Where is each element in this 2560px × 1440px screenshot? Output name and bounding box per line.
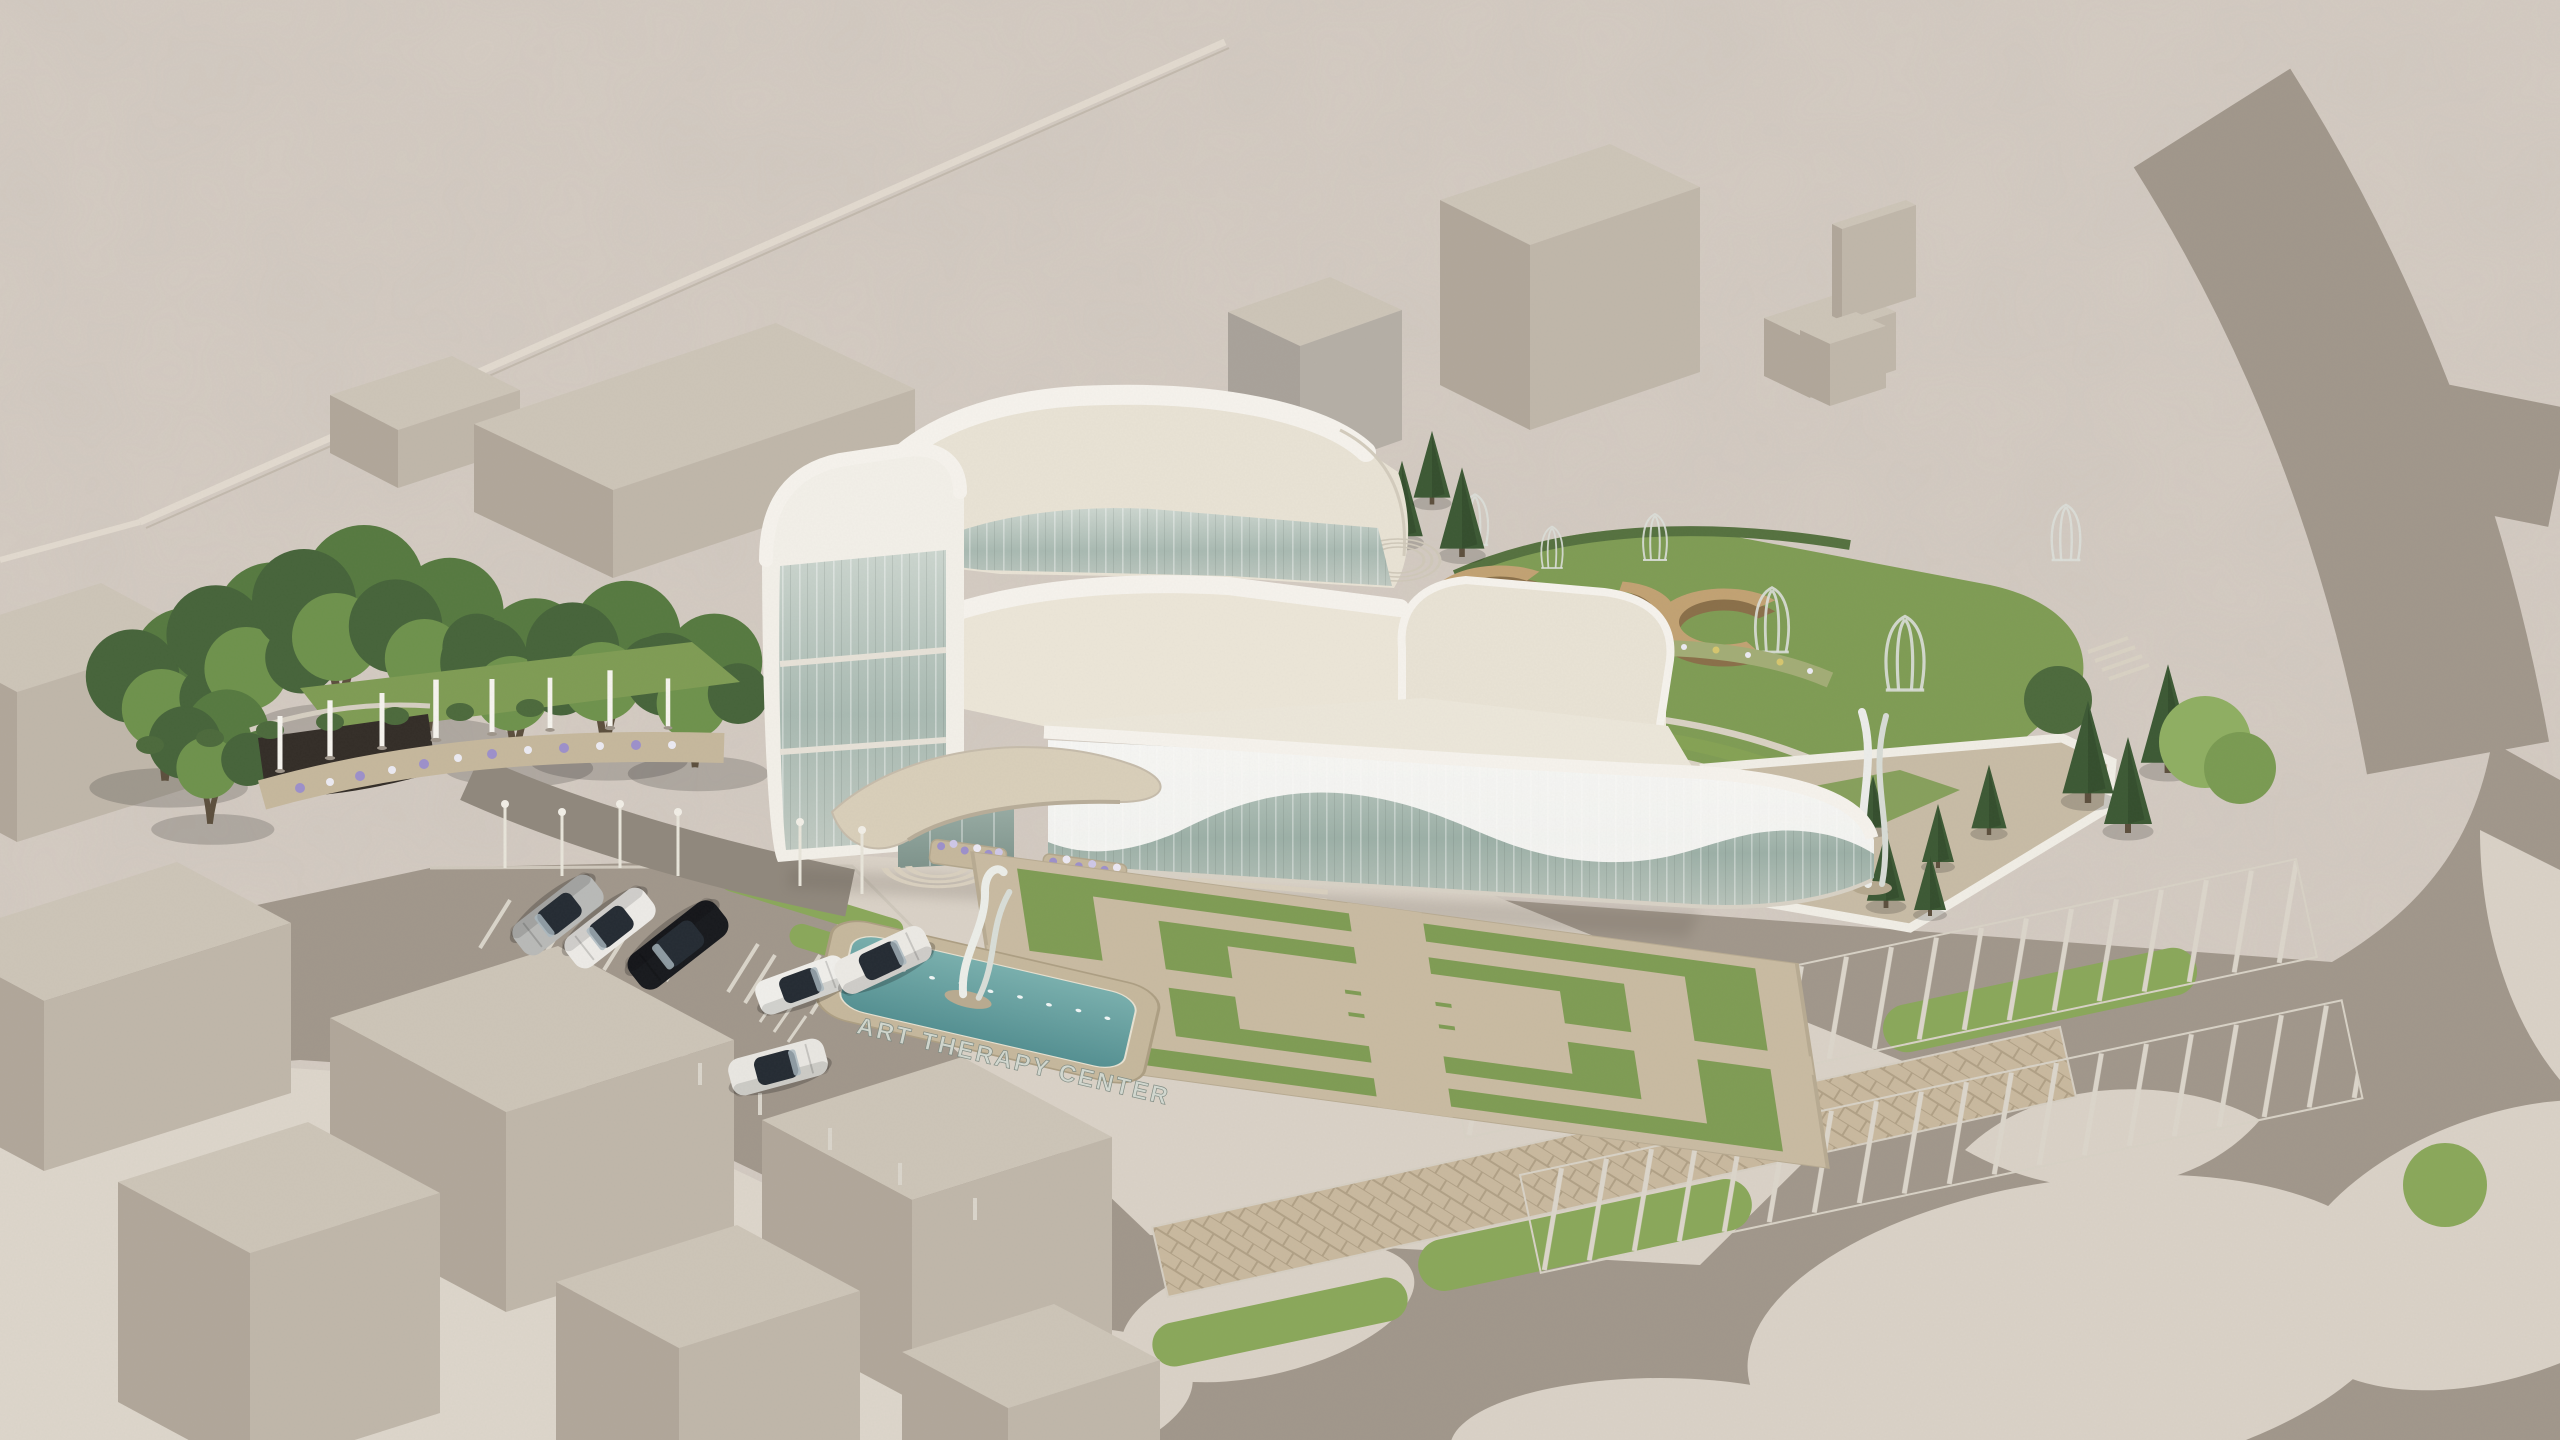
render-canvas: ART THERAPY CENTER — [0, 0, 2560, 1440]
grain-overlay — [0, 0, 2560, 1440]
